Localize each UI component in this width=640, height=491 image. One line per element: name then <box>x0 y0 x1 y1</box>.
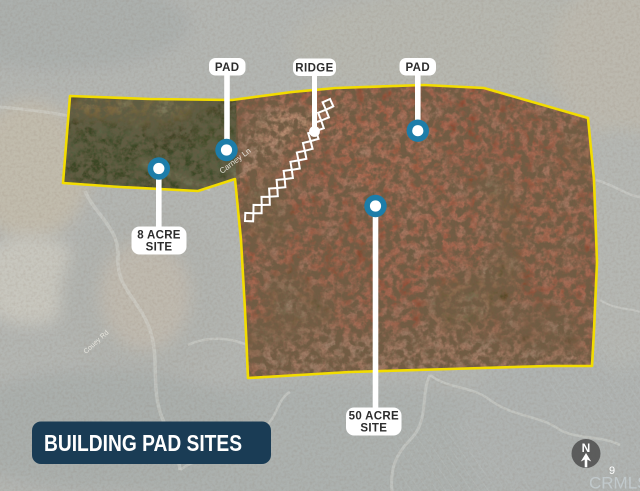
svg-text:50 ACRE: 50 ACRE <box>349 411 399 423</box>
svg-text:PAD: PAD <box>215 62 240 74</box>
svg-text:CRMLS: CRMLS <box>589 474 640 491</box>
svg-text:N: N <box>582 441 591 455</box>
svg-text:8 ACRE: 8 ACRE <box>137 230 181 242</box>
svg-text:SITE: SITE <box>360 423 387 435</box>
svg-text:BUILDING PAD SITES: BUILDING PAD SITES <box>44 430 242 456</box>
svg-text:SITE: SITE <box>146 242 173 254</box>
svg-text:PAD: PAD <box>405 62 430 74</box>
svg-text:RIDGE: RIDGE <box>295 63 333 75</box>
